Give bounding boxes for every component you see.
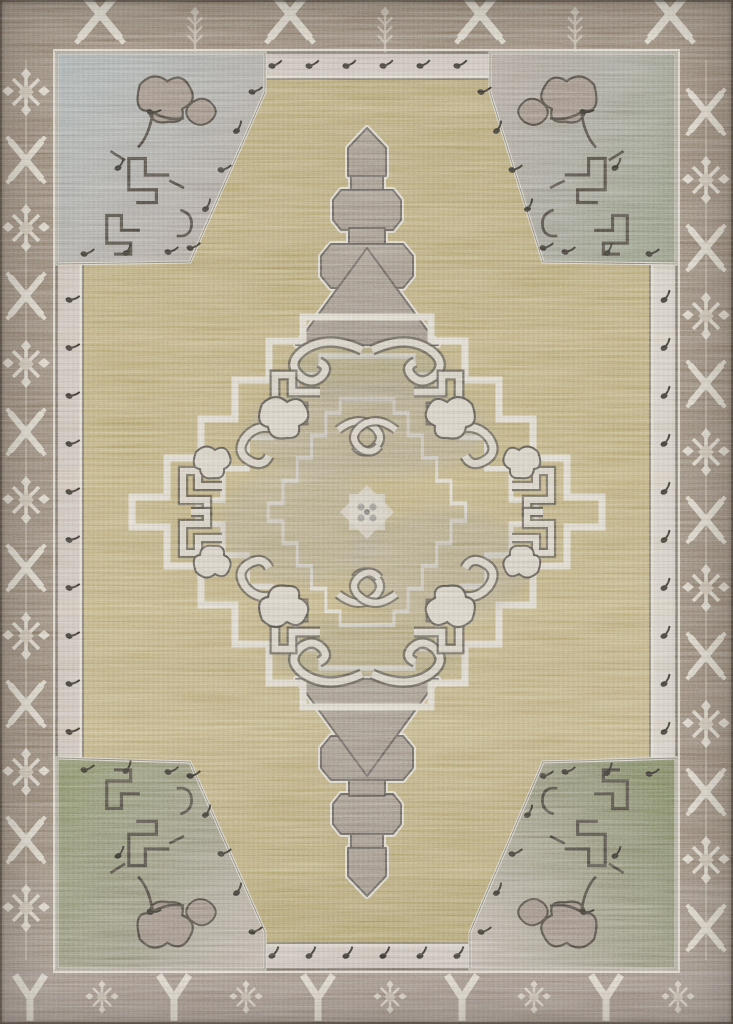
rug-photo <box>0 0 733 1024</box>
rug-graphic <box>0 0 733 1024</box>
weave-noise <box>0 0 733 1024</box>
